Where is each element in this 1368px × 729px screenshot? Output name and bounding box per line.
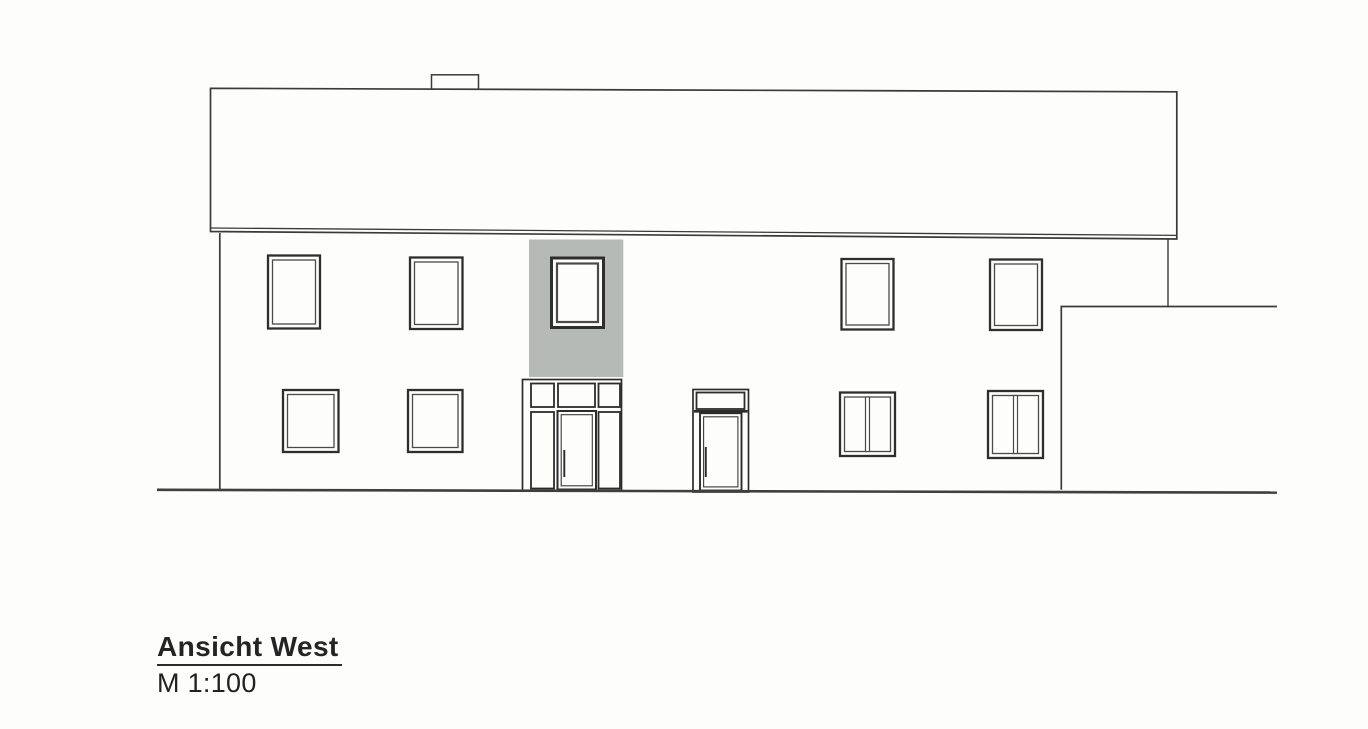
- main-entrance: [523, 380, 622, 491]
- side-entrance: [693, 390, 749, 493]
- window-upper-3: [842, 259, 894, 330]
- windows-layer: [268, 256, 1043, 459]
- west-elevation-drawing: [0, 0, 1368, 729]
- drawing-title: Ansicht West: [157, 632, 342, 666]
- window-upper-4: [990, 260, 1042, 331]
- window-outer-frame: [408, 390, 463, 452]
- drawing-sheet: Ansicht West M 1:100: [0, 0, 1368, 729]
- drawing-scale: M 1:100: [157, 669, 342, 699]
- window-upper-2: [410, 258, 463, 330]
- window-entrance-bay: [552, 258, 604, 328]
- transom-pane-right: [599, 384, 621, 408]
- sidelight-left: [531, 412, 554, 489]
- title-block: Ansicht West M 1:100: [157, 632, 342, 699]
- window-outer-frame: [552, 258, 604, 328]
- window-upper-1: [268, 256, 320, 329]
- main-door-leaf: [558, 411, 597, 490]
- sidelight-right: [599, 412, 621, 489]
- roof: [211, 88, 1177, 239]
- window-ground-4: [988, 391, 1043, 458]
- window-ground-1: [283, 390, 339, 452]
- window-outer-frame: [410, 258, 463, 330]
- ground-line: [157, 490, 1277, 493]
- window-mullion: [1014, 396, 1018, 454]
- window-mullion: [866, 397, 870, 452]
- window-outer-frame: [842, 259, 894, 330]
- window-ground-3: [840, 393, 895, 457]
- window-ground-2: [408, 390, 463, 452]
- roof-outline: [211, 88, 1177, 239]
- window-outer-frame: [990, 260, 1042, 331]
- annex-building-outline: [1061, 307, 1277, 490]
- window-outer-frame: [283, 390, 339, 452]
- transom-pane-middle: [558, 384, 595, 408]
- chimney: [432, 75, 479, 90]
- transom-pane-left: [531, 384, 554, 408]
- side-transom-pane: [697, 393, 745, 410]
- window-outer-frame: [268, 256, 320, 329]
